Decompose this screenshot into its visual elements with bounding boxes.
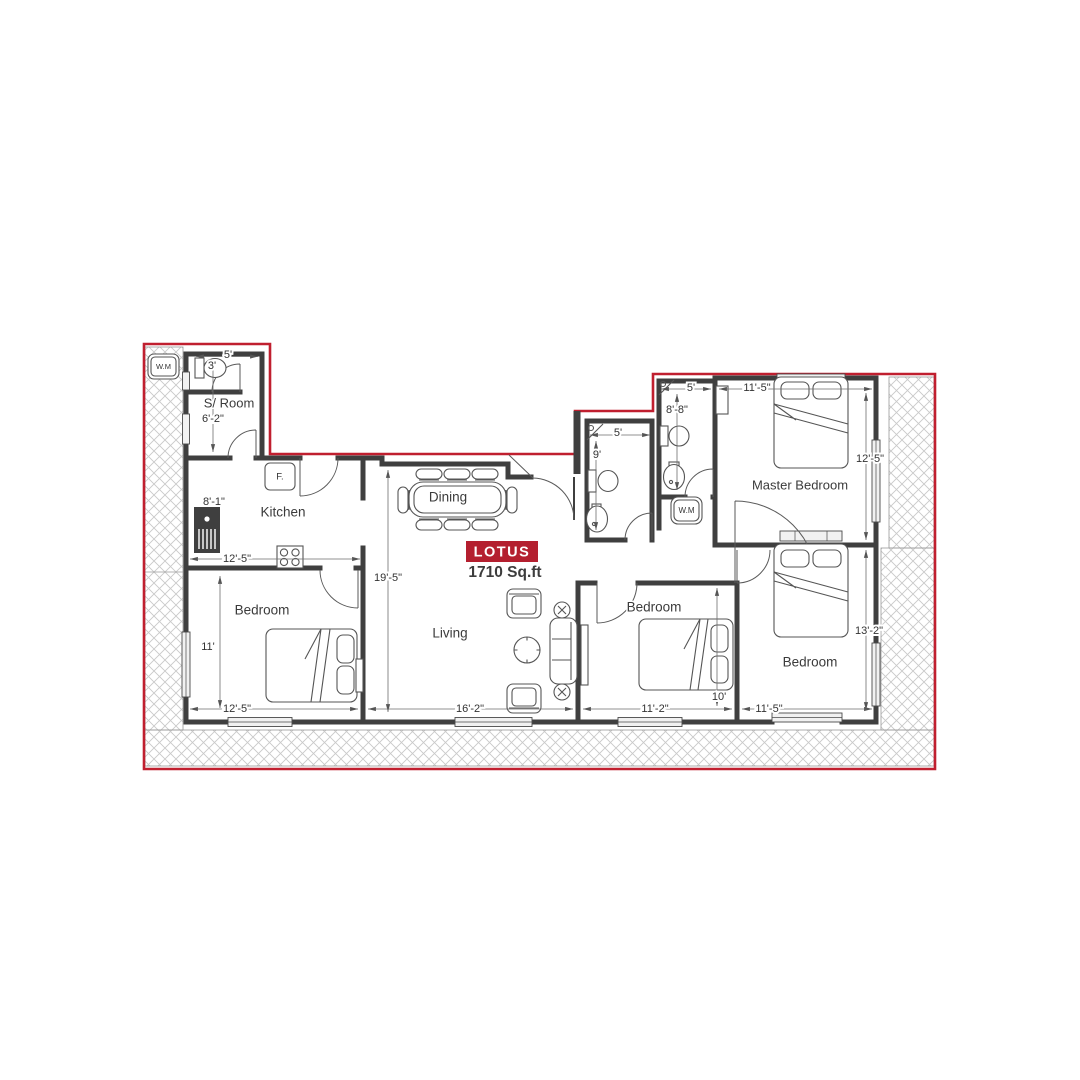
bathroom-mid-fixtures [587, 424, 619, 532]
closet [716, 386, 728, 414]
bedroom-middle-label: Bedroom [627, 600, 682, 615]
dim-living-width: 16'-2" [456, 703, 484, 715]
living-furniture [507, 589, 577, 713]
dim-s-room: 6'-2" [202, 413, 224, 425]
s-room-label: S/ Room [204, 395, 255, 410]
floor-plan-drawing: W.M F. [0, 0, 1080, 1080]
dim-kitchen-width: 12'-5" [223, 553, 251, 565]
wardrobe [581, 625, 588, 685]
dim-bedroom-left-height: 11' [201, 641, 215, 653]
dim-master-width: 11'-5" [743, 382, 770, 394]
bed-middle [581, 619, 733, 690]
title-block: LOTUS 1710 Sq.ft [466, 541, 542, 581]
dim-bedroom-right-width: 11'-5" [755, 703, 782, 715]
washing-machine-top: W.M [148, 354, 179, 379]
dim-bedroom-right-height: 13'-2" [855, 625, 883, 637]
living-label: Living [432, 626, 467, 641]
dim-living-length: 19'-5" [374, 572, 402, 584]
dim-kitchen-counter: 8'-1" [203, 496, 225, 508]
fridge-label: F. [276, 472, 283, 483]
fridge: F. [265, 463, 295, 490]
washing-machine-top-label: W.M [156, 362, 171, 371]
washing-machine-mid: W.M [671, 497, 702, 524]
dim-bath-top-width: 5' [687, 382, 695, 394]
dim-toilet-pan: 3' [208, 360, 216, 372]
coffee-table [514, 637, 540, 663]
stove [277, 546, 303, 568]
dim-toilet-width: 5' [224, 349, 232, 361]
dim-bedroom-middle-height: 10' [712, 691, 726, 703]
washing-machine-mid-label: W.M [679, 506, 695, 515]
bedroom-right-label: Bedroom [783, 655, 838, 670]
sofa [550, 618, 577, 684]
bed-left [266, 629, 363, 702]
master-bedroom-label: Master Bedroom [752, 477, 848, 492]
nightstand [356, 659, 363, 692]
dining-label: Dining [429, 490, 467, 505]
dim-bedroom-left-width: 12'-5" [223, 703, 251, 715]
bed-right [774, 544, 848, 637]
bed-master [716, 377, 848, 468]
dim-bedroom-middle-width: 11'-2" [641, 703, 668, 715]
bathroom-top-fixtures [659, 380, 689, 490]
dim-master-height: 12'-5" [856, 453, 884, 465]
dim-bath-mid-height: 9' [593, 449, 601, 461]
kitchen-label: Kitchen [260, 505, 305, 520]
entrance-door [509, 455, 574, 520]
plan-name: LOTUS [474, 544, 531, 560]
armchair-top [507, 589, 541, 618]
plan-area: 1710 Sq.ft [468, 564, 541, 581]
bedroom-left-label: Bedroom [235, 603, 290, 618]
kitchen-sink [194, 507, 220, 553]
dim-bath-mid-width: 5' [614, 427, 622, 439]
floor-plan-page: W.M F. [0, 0, 1080, 1080]
dim-bath-top-height: 8'-8" [666, 404, 688, 416]
